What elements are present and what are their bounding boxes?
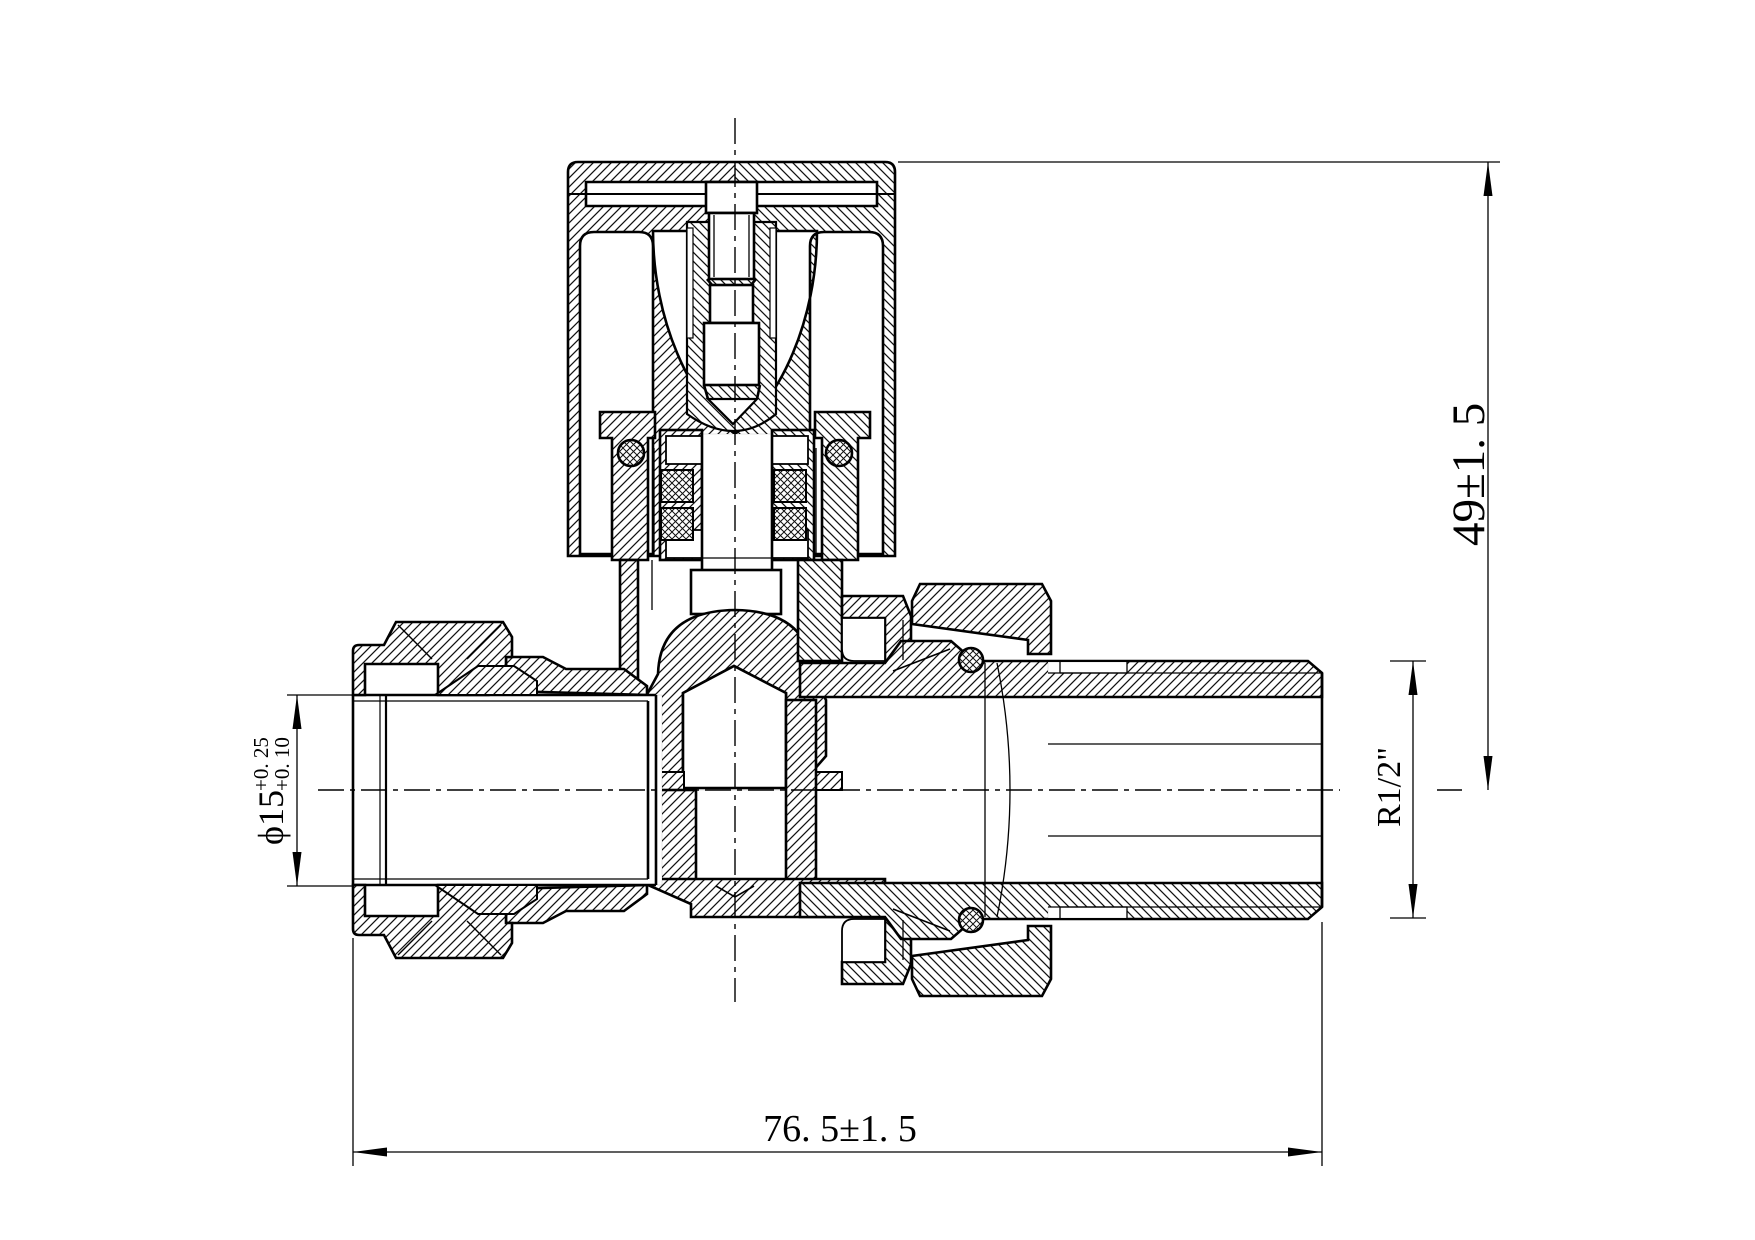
svg-text:R1/2": R1/2" (1371, 747, 1408, 827)
svg-text:76. 5±1. 5: 76. 5±1. 5 (763, 1108, 917, 1150)
svg-text:+0. 10: +0. 10 (270, 737, 294, 791)
svg-text:49±1. 5: 49±1. 5 (1443, 403, 1495, 546)
svg-text:ϕ15: ϕ15 (251, 790, 291, 845)
